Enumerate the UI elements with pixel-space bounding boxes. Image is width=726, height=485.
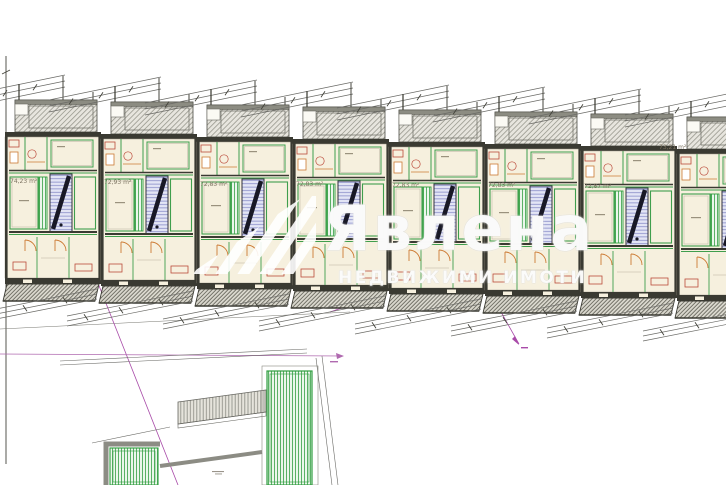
floorplan-canvas: 74,23 m²72,93 m²72,83 m²72,83 m²72,83 m²… — [0, 0, 726, 485]
terrace-green-hatch — [110, 448, 158, 485]
site-plan-fragment — [0, 349, 344, 485]
site-stair-hatch — [178, 390, 266, 424]
unit-floorplan — [0, 75, 101, 324]
units-row — [0, 75, 726, 341]
terrace-green-hatch — [267, 371, 312, 485]
floorplan-drawing — [0, 0, 726, 485]
